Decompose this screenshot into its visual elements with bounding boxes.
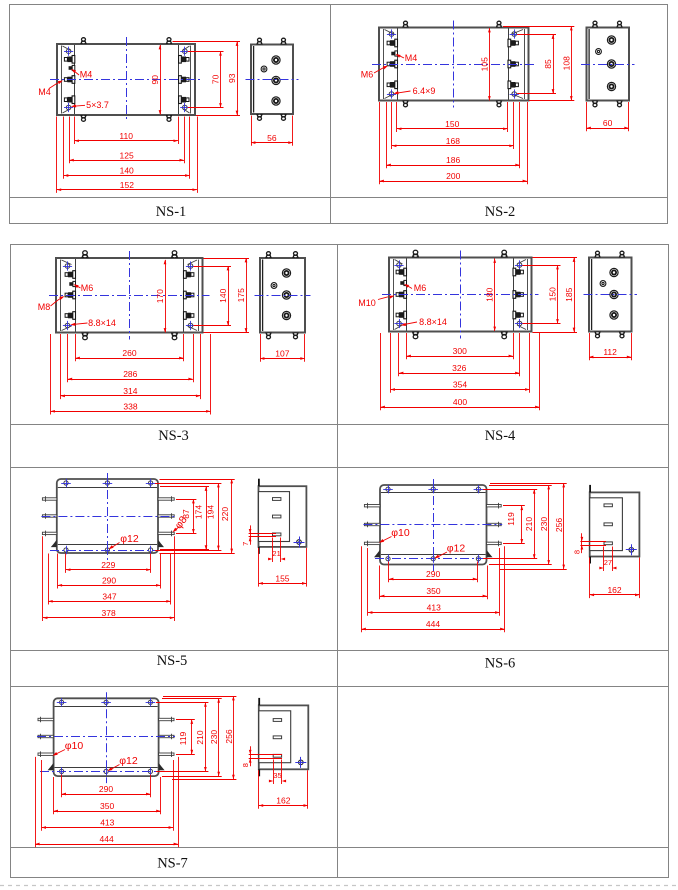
svg-text:350: 350 [426, 586, 440, 596]
svg-text:155: 155 [275, 574, 289, 584]
svg-text:162: 162 [607, 585, 621, 595]
svg-text:119: 119 [506, 512, 516, 526]
svg-text:60: 60 [603, 118, 613, 128]
svg-text:21: 21 [272, 549, 280, 558]
svg-text:7: 7 [241, 542, 250, 546]
svg-text:444: 444 [426, 619, 440, 629]
svg-text:M6: M6 [414, 283, 427, 293]
svg-text:119: 119 [178, 731, 188, 745]
svg-text:150: 150 [445, 119, 459, 129]
svg-text:8.8×14: 8.8×14 [88, 318, 116, 328]
svg-text:112: 112 [603, 347, 617, 357]
svg-text:170: 170 [155, 289, 165, 303]
svg-text:NS-5: NS-5 [157, 653, 188, 669]
svg-text:175: 175 [236, 288, 246, 302]
svg-text:8: 8 [241, 763, 250, 767]
svg-text:180: 180 [485, 287, 495, 301]
svg-text:M8: M8 [38, 302, 51, 312]
svg-text:M4: M4 [80, 70, 93, 80]
svg-text:300: 300 [453, 346, 467, 356]
svg-text:220: 220 [220, 507, 230, 521]
svg-text:35: 35 [273, 771, 281, 780]
svg-text:φ12: φ12 [447, 543, 466, 555]
svg-text:378: 378 [102, 608, 116, 618]
svg-text:NS-1: NS-1 [156, 204, 187, 220]
svg-text:314: 314 [123, 386, 137, 396]
svg-text:6.4×9: 6.4×9 [413, 86, 436, 96]
svg-text:350: 350 [100, 801, 114, 811]
svg-text:194: 194 [206, 505, 216, 519]
svg-text:70: 70 [211, 74, 221, 84]
svg-text:174: 174 [194, 505, 204, 519]
svg-text:56: 56 [267, 133, 277, 143]
svg-text:93: 93 [227, 73, 237, 83]
svg-text:210: 210 [195, 730, 205, 744]
svg-text:444: 444 [100, 834, 114, 844]
svg-text:286: 286 [123, 369, 137, 379]
svg-text:338: 338 [123, 402, 137, 412]
svg-text:NS-7: NS-7 [157, 856, 188, 872]
svg-text:φ10: φ10 [391, 527, 410, 539]
svg-text:354: 354 [453, 380, 467, 390]
svg-text:108: 108 [561, 56, 571, 70]
svg-text:27: 27 [604, 558, 612, 567]
svg-text:5×3.7: 5×3.7 [86, 100, 109, 110]
svg-text:φ12: φ12 [119, 755, 138, 767]
svg-text:125: 125 [120, 150, 134, 160]
svg-text:105: 105 [479, 57, 489, 71]
svg-text:M6: M6 [361, 70, 374, 80]
svg-text:256: 256 [554, 518, 564, 532]
svg-text:162: 162 [276, 796, 290, 806]
svg-text:185: 185 [564, 287, 574, 301]
svg-text:400: 400 [453, 397, 467, 407]
svg-text:290: 290 [99, 784, 113, 794]
svg-text:256: 256 [224, 729, 234, 743]
svg-text:NS-3: NS-3 [158, 428, 189, 444]
svg-text:φ10: φ10 [65, 740, 84, 752]
svg-text:NS-2: NS-2 [485, 204, 516, 220]
svg-text:M4: M4 [405, 53, 418, 63]
svg-text:413: 413 [427, 603, 441, 613]
svg-text:230: 230 [209, 730, 219, 744]
svg-text:90: 90 [150, 75, 160, 85]
svg-text:NS-4: NS-4 [485, 428, 516, 444]
svg-text:φ12: φ12 [120, 533, 139, 545]
svg-text:152: 152 [120, 180, 134, 190]
svg-text:8: 8 [573, 550, 582, 554]
svg-text:290: 290 [426, 569, 440, 579]
svg-text:326: 326 [452, 363, 466, 373]
svg-text:186: 186 [446, 155, 460, 165]
svg-text:229: 229 [101, 560, 115, 570]
svg-text:8.8×14: 8.8×14 [419, 317, 447, 327]
svg-text:M10: M10 [358, 298, 376, 308]
svg-text:230: 230 [539, 517, 549, 531]
svg-text:413: 413 [100, 818, 114, 828]
svg-text:107: 107 [275, 349, 289, 359]
svg-text:140: 140 [218, 288, 228, 302]
svg-text:210: 210 [524, 517, 534, 531]
svg-text:140: 140 [120, 166, 134, 176]
svg-text:200: 200 [446, 171, 460, 181]
svg-text:150: 150 [548, 287, 558, 301]
svg-text:NS-6: NS-6 [485, 656, 516, 672]
svg-text:168: 168 [446, 136, 460, 146]
svg-text:85: 85 [543, 59, 553, 69]
svg-text:M4: M4 [38, 87, 51, 97]
svg-text:110: 110 [119, 131, 133, 141]
svg-text:260: 260 [122, 348, 136, 358]
svg-text:347: 347 [102, 592, 116, 602]
svg-text:290: 290 [102, 576, 116, 586]
svg-text:M6: M6 [81, 283, 94, 293]
